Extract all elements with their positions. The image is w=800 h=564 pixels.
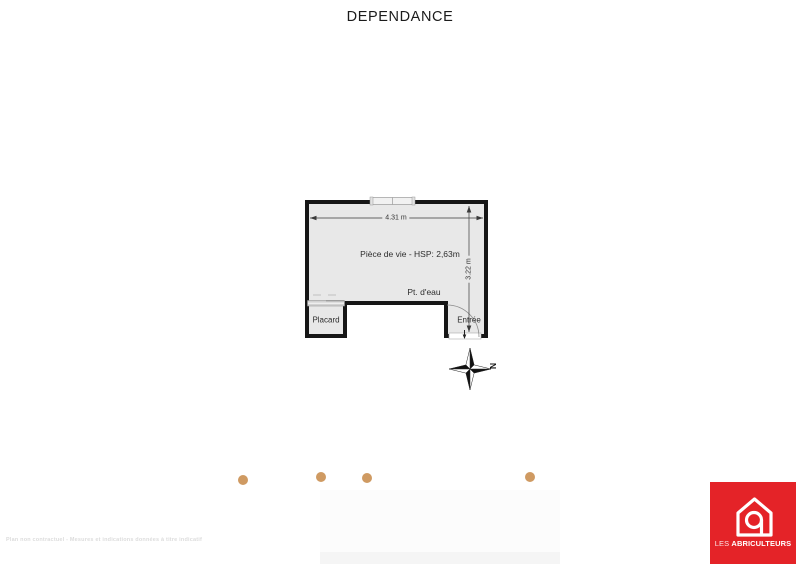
- decorative-dot: [238, 475, 248, 485]
- width-dimension-label: 4.31 m: [382, 215, 409, 222]
- height-dimension-label: 3.22 m: [466, 255, 473, 282]
- closet-label: Placard: [312, 316, 339, 325]
- room-label: Pièce de vie - HSP: 2,63m: [360, 249, 460, 259]
- window: [370, 197, 415, 205]
- brand-logo: LES ABRICULTEURS: [710, 482, 796, 564]
- floorplan-canvas: [0, 0, 800, 564]
- disclaimer-text: Plan non contractuel - Mesures et indica…: [6, 537, 202, 543]
- compass-rose-icon: [449, 348, 491, 390]
- water-point-label: Pt. d'eau: [407, 287, 440, 297]
- entrance-label: Entrée: [457, 316, 481, 325]
- brand-name: LES ABRICULTEURS: [710, 539, 796, 548]
- house-apricot-icon: [710, 482, 796, 538]
- page: DEPENDANCE: [0, 0, 800, 564]
- compass-north-label: N: [488, 363, 498, 369]
- decorative-dot: [316, 472, 326, 482]
- decorative-dot: [525, 472, 535, 482]
- decorative-dots: [238, 472, 535, 485]
- closet-sliding-door: [308, 301, 345, 307]
- decorative-dot: [362, 473, 372, 483]
- brand-prefix-text: LES: [715, 539, 729, 548]
- brand-main-text: ABRICULTEURS: [731, 539, 791, 548]
